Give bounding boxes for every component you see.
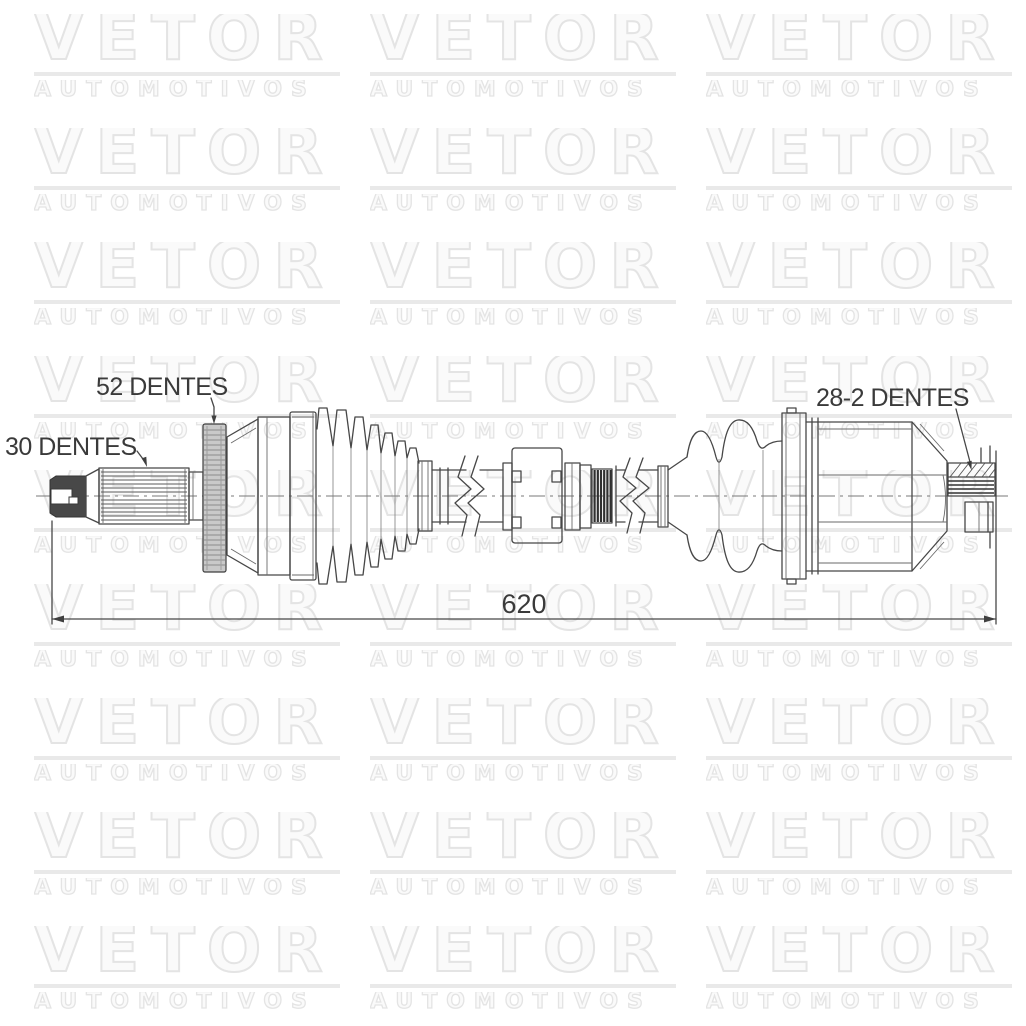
- abs-tone-ring: [203, 424, 226, 572]
- cv-axle-drawing: 30 DENTES 52 DENTES 28-2 DENTES 620: [0, 0, 1026, 1026]
- product-technical-drawing: VETORAUTOMOTIVOSVETORAUTOMOTIVOSVETORAUT…: [0, 0, 1026, 1026]
- callout-52-dentes: 52 DENTES: [96, 373, 228, 424]
- dimension-overall-length: 620: [501, 589, 546, 619]
- callout-30-dentes: 30 DENTES: [5, 433, 147, 467]
- callout-28-2-dentes: 28-2 DENTES: [816, 384, 972, 470]
- label-outer-spline: 30 DENTES: [5, 433, 137, 461]
- overall-length-dimension: 620: [52, 451, 996, 624]
- label-abs-ring: 52 DENTES: [96, 373, 228, 401]
- label-inner-spline: 28-2 DENTES: [816, 384, 969, 412]
- inner-joint-housing: [782, 408, 947, 584]
- outer-stub-threaded-end: [50, 469, 99, 523]
